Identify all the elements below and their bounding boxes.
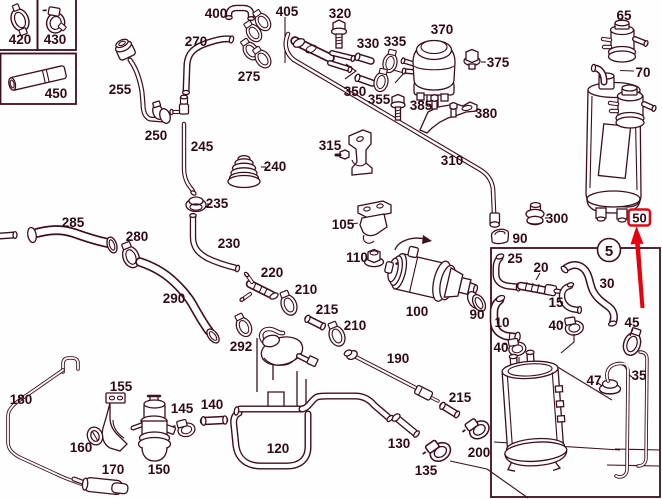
svg-text:47: 47 — [586, 373, 601, 388]
svg-text:255: 255 — [109, 82, 132, 97]
svg-text:350: 350 — [344, 84, 367, 99]
svg-text:35: 35 — [631, 368, 647, 383]
svg-text:275: 275 — [238, 69, 261, 84]
svg-text:250: 250 — [145, 128, 168, 143]
svg-text:405: 405 — [276, 4, 299, 19]
svg-text:190: 190 — [387, 351, 410, 366]
svg-text:110: 110 — [346, 250, 368, 265]
svg-text:300: 300 — [546, 211, 569, 226]
svg-text:220: 220 — [261, 265, 284, 280]
svg-text:45: 45 — [624, 315, 640, 330]
svg-text:135: 135 — [415, 463, 438, 478]
svg-text:240: 240 — [264, 159, 287, 174]
svg-text:215: 215 — [316, 302, 339, 317]
svg-text:335: 335 — [384, 34, 407, 49]
svg-text:120: 120 — [267, 441, 290, 456]
svg-text:450: 450 — [45, 86, 68, 101]
svg-text:245: 245 — [191, 139, 214, 154]
svg-text:40: 40 — [548, 318, 563, 333]
svg-text:25: 25 — [507, 251, 523, 266]
svg-text:5: 5 — [605, 243, 613, 260]
svg-text:210: 210 — [344, 318, 367, 333]
svg-text:90: 90 — [512, 231, 527, 246]
svg-text:50: 50 — [632, 211, 646, 226]
svg-text:10: 10 — [494, 315, 509, 330]
svg-text:160: 160 — [70, 440, 93, 455]
svg-text:400: 400 — [205, 6, 228, 21]
svg-text:180: 180 — [10, 392, 33, 407]
svg-text:140: 140 — [201, 397, 224, 412]
svg-text:155: 155 — [110, 379, 133, 394]
svg-text:215: 215 — [449, 390, 472, 405]
svg-text:40: 40 — [493, 340, 508, 355]
svg-text:285: 285 — [62, 215, 85, 230]
svg-text:270: 270 — [185, 34, 208, 49]
svg-text:292: 292 — [230, 339, 253, 354]
svg-text:370: 370 — [431, 22, 454, 37]
svg-text:100: 100 — [406, 304, 429, 319]
svg-text:420: 420 — [9, 32, 32, 47]
svg-text:65: 65 — [616, 8, 632, 23]
svg-text:70: 70 — [635, 65, 650, 80]
svg-text:20: 20 — [533, 260, 548, 275]
svg-text:330: 330 — [357, 36, 380, 51]
svg-text:430: 430 — [44, 32, 67, 47]
svg-text:230: 230 — [218, 236, 241, 251]
svg-text:15: 15 — [548, 295, 564, 310]
svg-text:210: 210 — [295, 282, 318, 297]
svg-text:30: 30 — [599, 276, 614, 291]
svg-text:320: 320 — [329, 6, 352, 21]
svg-text:105: 105 — [332, 217, 355, 232]
svg-text:90: 90 — [469, 307, 484, 322]
svg-text:130: 130 — [388, 436, 411, 451]
svg-text:280: 280 — [126, 229, 149, 244]
svg-text:315: 315 — [319, 138, 342, 153]
svg-text:375: 375 — [487, 55, 510, 70]
svg-text:145: 145 — [171, 401, 194, 416]
svg-text:355: 355 — [368, 92, 391, 107]
svg-text:150: 150 — [148, 462, 171, 477]
svg-text:290: 290 — [163, 291, 186, 306]
svg-text:200: 200 — [468, 445, 491, 460]
svg-text:310: 310 — [441, 153, 464, 168]
svg-text:380: 380 — [475, 106, 498, 121]
svg-text:170: 170 — [102, 462, 125, 477]
svg-text:235: 235 — [206, 196, 229, 211]
